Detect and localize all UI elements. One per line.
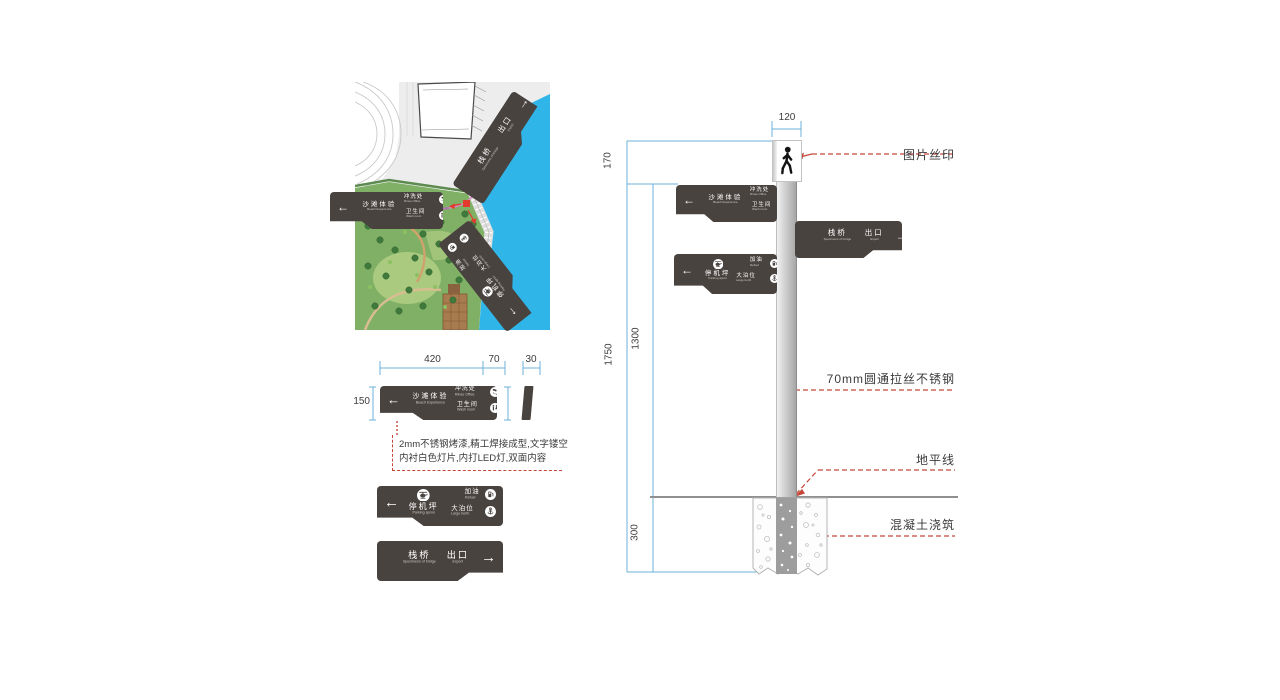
sign-items: 加油Refuel大泊位Large berth: [451, 488, 496, 517]
arrow-left-icon: ←: [683, 194, 695, 206]
sign-item: 加油Refuel: [736, 257, 779, 269]
label-ground-line: 地平线: [855, 451, 955, 468]
sign-item-en: Refuel: [750, 264, 759, 267]
helicopter-icon: [713, 259, 723, 269]
sign-item-en: Large berth: [451, 512, 469, 516]
red-leader-lines: [795, 154, 955, 536]
sign-primary: 沙滩体验Beach Experience: [406, 393, 455, 407]
sign-secondary-zh: 出口: [447, 550, 469, 561]
label-concrete: 混凝土浇筑: [855, 516, 955, 533]
sign-item-en: Rinse Office: [455, 393, 475, 397]
sign-primary-zh: 栈桥: [408, 550, 430, 561]
arrow-left-icon: ←: [387, 393, 400, 406]
dim-150: 150: [348, 396, 370, 407]
sign-primary: 停机坪Parking apron: [699, 259, 736, 284]
sign-item: 卫生间Wash room: [455, 402, 501, 415]
sign-primary: 沙滩体验Beach Experience: [701, 194, 750, 207]
dim-30: 30: [520, 354, 542, 365]
dim-70: 70: [482, 354, 506, 365]
sign-item-zh: 加油: [750, 257, 763, 263]
dim-1300: 1300: [631, 324, 642, 354]
sign-pole: [776, 182, 797, 497]
sign-primary-zh: 沙滩体验: [412, 393, 448, 401]
sign-primary-en: Specimens of bridge: [824, 238, 851, 241]
sign-items: 加油Refuel大泊位Large berth: [736, 257, 779, 284]
sign-secondary-zh: 出口: [865, 229, 884, 238]
sign-item-zh: 大泊位: [736, 273, 756, 279]
arrow-left-icon: ←: [384, 495, 399, 510]
concrete-foundation: [750, 497, 830, 579]
sign-item: 大泊位Large berth: [451, 505, 496, 518]
note-line-1: 2mm不锈钢烤漆,精工焊接成型,文字镂空: [399, 438, 562, 452]
sign-item-en: Refuel: [465, 496, 475, 500]
sign-secondary-en: Export: [453, 560, 463, 564]
dim-1750: 1750: [604, 340, 615, 370]
arrow-left-icon: ←: [681, 264, 693, 276]
dim-300: 300: [630, 520, 641, 546]
note-line-2: 内衬白色灯片,内打LED灯,双面内容: [399, 452, 562, 466]
sign-item: 加油Refuel: [451, 488, 496, 501]
sign-primary: 栈桥Specimens of bridge: [392, 550, 447, 567]
sign-secondary-en: Export: [870, 238, 879, 241]
label-pole-material: 70mm圆通拉丝不锈钢: [805, 370, 955, 387]
sign-secondary: 出口Export: [865, 229, 884, 244]
sign-primary-en: Beach Experience: [416, 401, 445, 405]
sign-primary-en: Parking apron: [412, 511, 434, 515]
sign-item-en: Wash room: [752, 208, 767, 211]
sign-primary-en: Beach Experience: [713, 201, 737, 204]
dim-120: 120: [774, 112, 800, 123]
signage-design-sheet: ←沙滩体验Beach Experience冲洗处Rinse Office卫生间W…: [0, 0, 1280, 700]
sign-primary-zh: 栈桥: [828, 229, 847, 238]
helicopter-icon: [417, 489, 430, 502]
sign-item-en: Rinse Office: [750, 193, 766, 196]
pedestrian-pictogram-sign: [772, 140, 802, 182]
arrow-right-icon: →: [481, 550, 496, 565]
dim-420: 420: [405, 354, 460, 365]
sign-item-en: Large berth: [736, 279, 751, 282]
pedestrian-icon: [773, 141, 801, 181]
sign-items: 冲洗处Rinse Office卫生间Wash room: [455, 386, 501, 414]
sign-primary: 停机坪Parking apron: [405, 489, 442, 518]
sign-secondary: 出口Export: [447, 550, 469, 567]
sign-primary-en: Parking apron: [708, 277, 727, 280]
sign-item-zh: 加油: [465, 488, 480, 495]
sign-item: 冲洗处Rinse Office: [455, 386, 501, 399]
anchor-icon: [485, 506, 496, 517]
sign-item: 大泊位Large berth: [736, 273, 779, 285]
sign-item-zh: 冲洗处: [455, 386, 476, 393]
dim-170: 170: [603, 149, 614, 173]
sign-primary-en: Specimens of bridge: [403, 560, 436, 564]
fuel-icon: [485, 489, 496, 500]
sign-item-en: Wash room: [457, 408, 475, 412]
material-note: 2mm不锈钢烤漆,精工焊接成型,文字镂空 内衬白色灯片,内打LED灯,双面内容: [392, 435, 562, 471]
sign-primary: 栈桥Specimens of bridge: [810, 229, 865, 244]
sign-item-zh: 大泊位: [451, 505, 474, 512]
label-silk-print: 图片丝印: [855, 146, 955, 163]
